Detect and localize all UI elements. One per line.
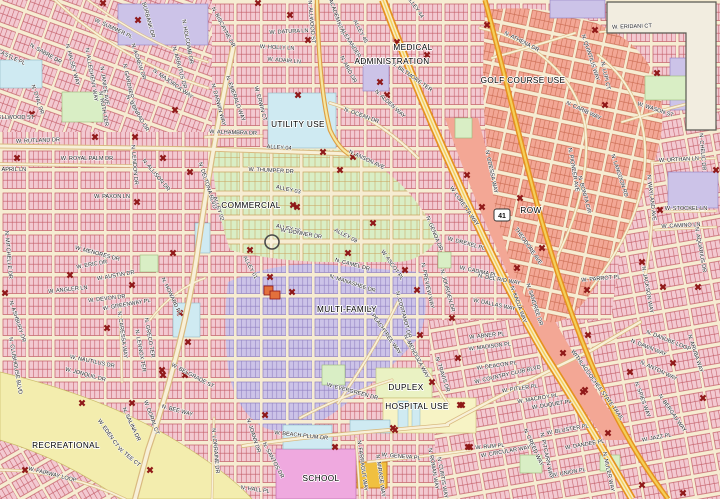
zone-label: SCHOOL (303, 474, 340, 483)
well-circle-icon (265, 235, 279, 249)
zone-label: ADMINISTRATION (354, 57, 429, 66)
zone-label: UTILITY USE (271, 120, 325, 129)
street-label: W. ELLWOOD ST (0, 115, 35, 121)
zone-administration-parcel (363, 64, 389, 91)
zoning-map-window: W. DATURA LNW. HOLLY LNW. ADAIR LNN. BIS… (0, 0, 720, 499)
zone-label: RECREATIONAL (32, 441, 100, 450)
street-label: W. PAXON LN (94, 194, 130, 200)
zone-label: HOSPITAL USE (385, 402, 449, 411)
highway-shield-number: 41 (498, 213, 506, 220)
street-label: W. STOCKEL LN (665, 206, 708, 212)
zone-label: ROW (520, 206, 541, 215)
street-label: W. APRIL LN (0, 167, 26, 173)
zone-label: MEDICAL (393, 43, 432, 52)
zone-label: DUPLEX (388, 383, 423, 392)
highway-41-shield: 41 (494, 209, 510, 221)
zone-label: MULTI-FAMILY (317, 305, 377, 314)
zoning-map-canvas[interactable]: W. DATURA LNW. HOLLY LNW. ADAIR LNN. BIS… (0, 0, 720, 499)
zone-label: COMMERCIAL (221, 201, 281, 210)
street-label: W. ROYAL PALM DR (61, 156, 113, 162)
zone-label: GOLF COURSE USE (481, 76, 566, 85)
